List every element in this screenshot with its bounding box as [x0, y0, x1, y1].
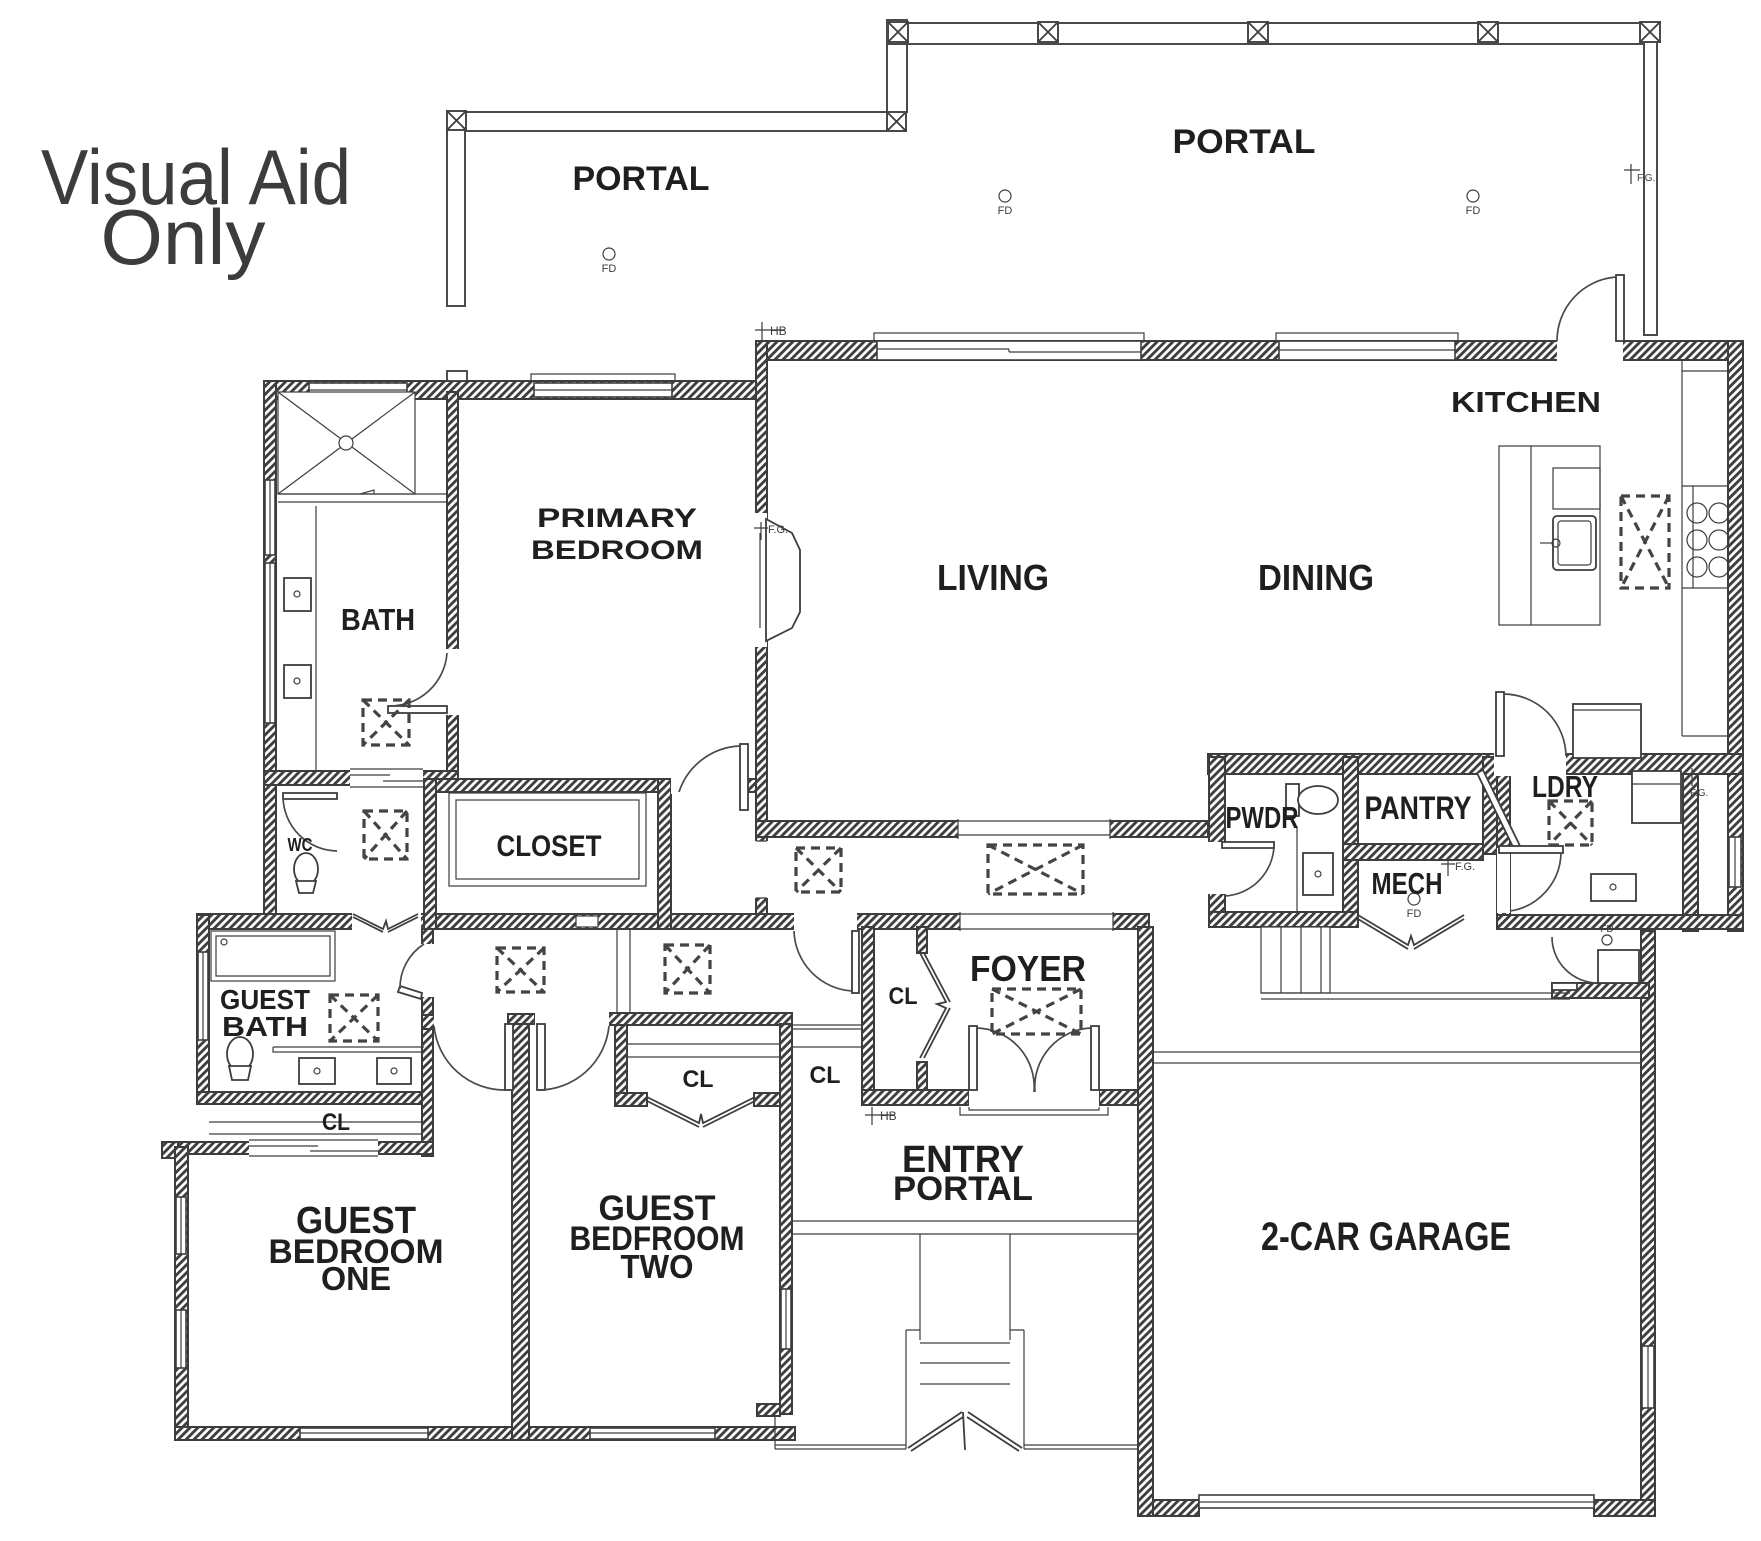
svg-text:FOYER: FOYER	[970, 948, 1086, 989]
svg-text:BATH: BATH	[341, 602, 415, 637]
svg-text:CL: CL	[322, 1109, 350, 1136]
svg-text:CL: CL	[810, 1062, 841, 1089]
svg-text:PANTRY: PANTRY	[1365, 790, 1472, 826]
svg-text:FD: FD	[1600, 924, 1613, 935]
svg-text:Only: Only	[101, 193, 266, 281]
svg-text:LIVING: LIVING	[937, 557, 1049, 598]
svg-text:HB: HB	[880, 1109, 897, 1123]
svg-text:PRIMARY: PRIMARY	[537, 503, 697, 533]
svg-text:MECH: MECH	[1372, 866, 1443, 901]
svg-text:BATH: BATH	[222, 1011, 308, 1042]
svg-text:PORTAL: PORTAL	[1173, 123, 1316, 161]
svg-text:HB: HB	[770, 324, 787, 338]
svg-text:FD: FD	[998, 205, 1013, 217]
svg-text:2-CAR GARAGE: 2-CAR GARAGE	[1261, 1215, 1511, 1259]
svg-text:WC: WC	[288, 835, 313, 855]
svg-text:FD: FD	[602, 263, 617, 275]
svg-text:FD: FD	[1407, 908, 1422, 920]
svg-text:BEDROOM: BEDROOM	[531, 535, 703, 565]
svg-text:KITCHEN: KITCHEN	[1451, 387, 1601, 419]
svg-text:CL: CL	[683, 1066, 714, 1093]
svg-text:F.G.: F.G.	[768, 524, 788, 536]
svg-text:PORTAL: PORTAL	[893, 1170, 1033, 1208]
svg-text:PWDR: PWDR	[1226, 800, 1299, 835]
svg-text:ONE: ONE	[321, 1260, 391, 1297]
svg-text:F.G.: F.G.	[1455, 861, 1475, 873]
svg-text:FD: FD	[1466, 205, 1481, 217]
svg-text:PORTAL: PORTAL	[573, 160, 710, 198]
svg-text:DINING: DINING	[1258, 557, 1374, 598]
svg-text:CLOSET: CLOSET	[497, 830, 602, 863]
svg-text:CL: CL	[889, 983, 918, 1010]
svg-text:LDRY: LDRY	[1532, 769, 1598, 804]
svg-text:F.G.: F.G.	[1637, 173, 1655, 184]
svg-text:F.G.: F.G.	[1690, 788, 1708, 799]
svg-text:TWO: TWO	[621, 1248, 694, 1285]
